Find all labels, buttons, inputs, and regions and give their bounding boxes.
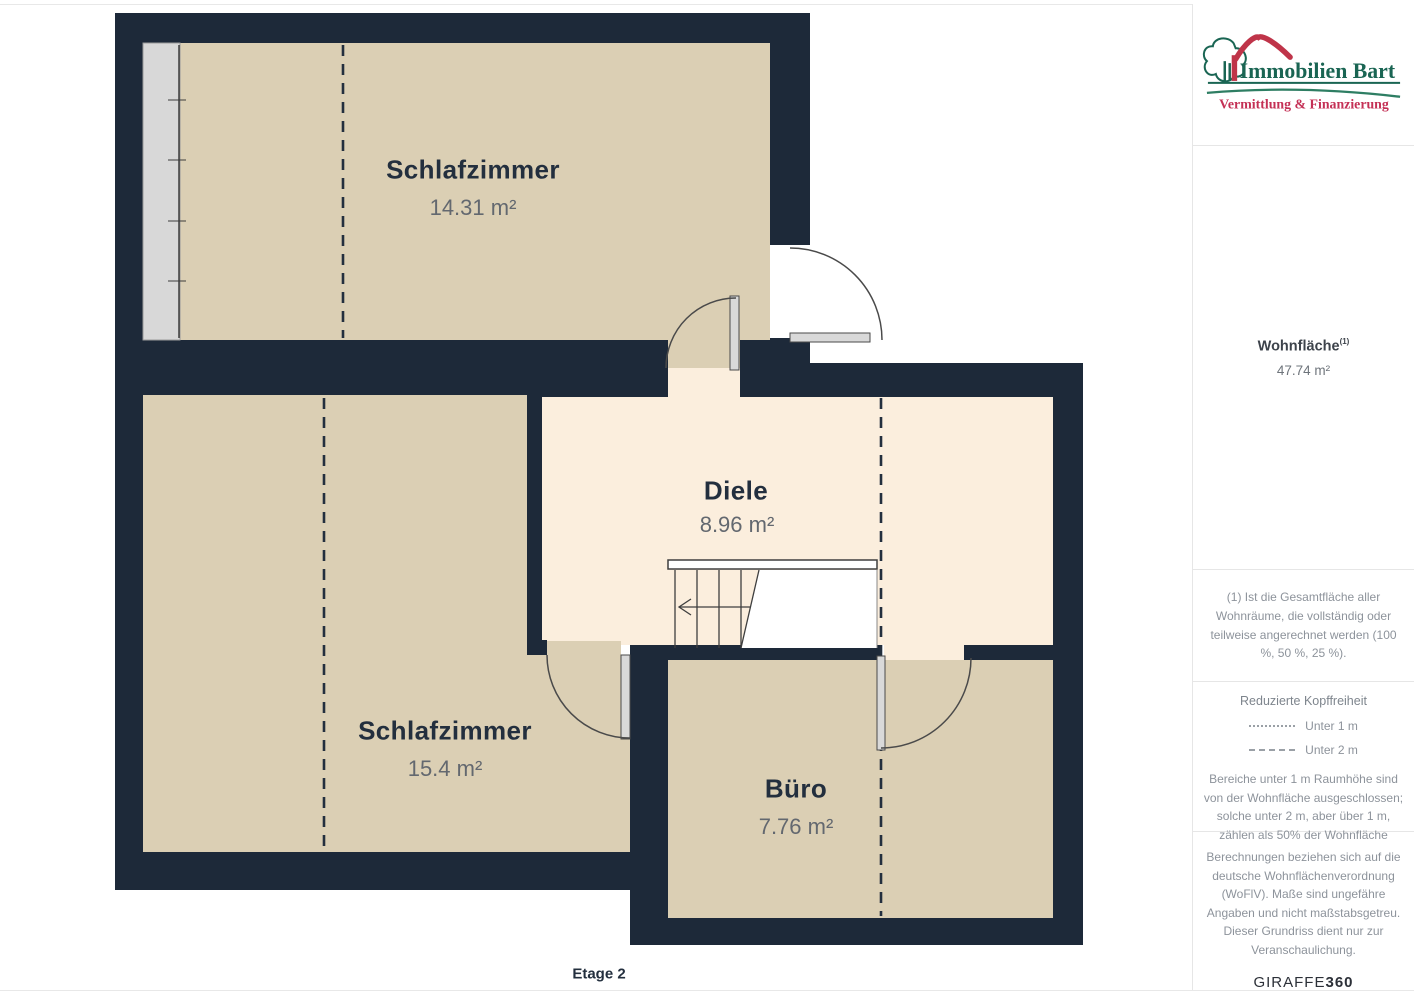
logo-roof-icon (1235, 36, 1289, 58)
door-arc-exterior (790, 248, 882, 340)
room-schlafzimmer-top-floor (143, 43, 770, 340)
floor-label: Etage 2 (572, 966, 625, 983)
floorplan-canvas (0, 0, 1190, 1000)
room-buero-floor (668, 660, 1053, 918)
room-area-diele: 8.96 m² (700, 512, 775, 538)
doorway-fill-schlafzimmer (547, 641, 621, 655)
living-area-label: Wohnfläche(1) (1258, 337, 1350, 355)
door-leaf-diele-schlafzimmer (621, 655, 630, 739)
room-label-schlafzimmer-bottom: Schlafzimmer (358, 716, 532, 747)
headroom-section: Reduzierte Kopffreiheit Unter 1 m Unter … (1193, 682, 1414, 832)
room-label-diele: Diele (704, 476, 768, 507)
footnote-section: (1) Ist die Gesamtfläche aller Wohnräume… (1193, 570, 1414, 682)
room-label-buero: Büro (765, 774, 827, 805)
stair-rail (668, 560, 877, 569)
living-area-footnote-marker: (1) (1340, 337, 1350, 346)
legend-under-1m: Unter 1 m (1249, 719, 1358, 733)
room-label-schlafzimmer-top: Schlafzimmer (386, 155, 560, 186)
living-area-section: Wohnfläche(1) 47.74 m² (1193, 146, 1414, 570)
door-leaf-bedroom-diele (730, 296, 739, 370)
dashed-line-icon (1249, 749, 1295, 751)
logo-section: Immobilien Bart Vermittlung & Finanzieru… (1193, 4, 1414, 146)
window-strip (143, 43, 186, 340)
footnote-text: (1) Ist die Gesamtfläche aller Wohnräume… (1203, 588, 1405, 662)
disclaimer-text: Berechnungen beziehen sich auf die deuts… (1203, 848, 1405, 960)
room-schlafzimmer-bottom-floor (143, 395, 527, 852)
doorway-fill-buero (884, 645, 964, 660)
disclaimer-section: Berechnungen beziehen sich auf die deuts… (1193, 832, 1414, 990)
door-leaf-diele-buero (877, 656, 885, 750)
info-sidebar: Immobilien Bart Vermittlung & Finanzieru… (1192, 4, 1414, 990)
floorplan-viewer: Schlafzimmer 14.31 m² Schlafzimmer 15.4 … (0, 0, 1414, 1000)
doorway-fill-top (668, 338, 740, 368)
logo-subtitle: Vermittlung & Finanzierung (1219, 96, 1389, 111)
doorway-fill-top2 (668, 368, 740, 398)
room-area-schlafzimmer-bottom: 15.4 m² (408, 756, 483, 782)
room-schlafzimmer-bottom-floor-ext (527, 655, 630, 852)
door-leaf-exterior (790, 333, 870, 342)
logo-title: Immobilien Bart (1239, 58, 1395, 82)
giraffe360-logo: GIRAFFE360 (1253, 974, 1353, 991)
legend-under-2m: Unter 2 m (1249, 743, 1358, 757)
wall-nub (527, 640, 547, 655)
room-area-schlafzimmer-top: 14.31 m² (430, 195, 517, 221)
logo-chimney-icon (1231, 55, 1236, 81)
room-fills (143, 43, 1053, 918)
living-area-value: 47.74 m² (1277, 363, 1330, 378)
dotted-line-icon (1249, 725, 1295, 727)
headroom-title: Reduzierte Kopffreiheit (1240, 694, 1367, 708)
agency-logo-icon: Immobilien Bart Vermittlung & Finanzieru… (1200, 29, 1408, 121)
room-area-buero: 7.76 m² (759, 814, 834, 840)
